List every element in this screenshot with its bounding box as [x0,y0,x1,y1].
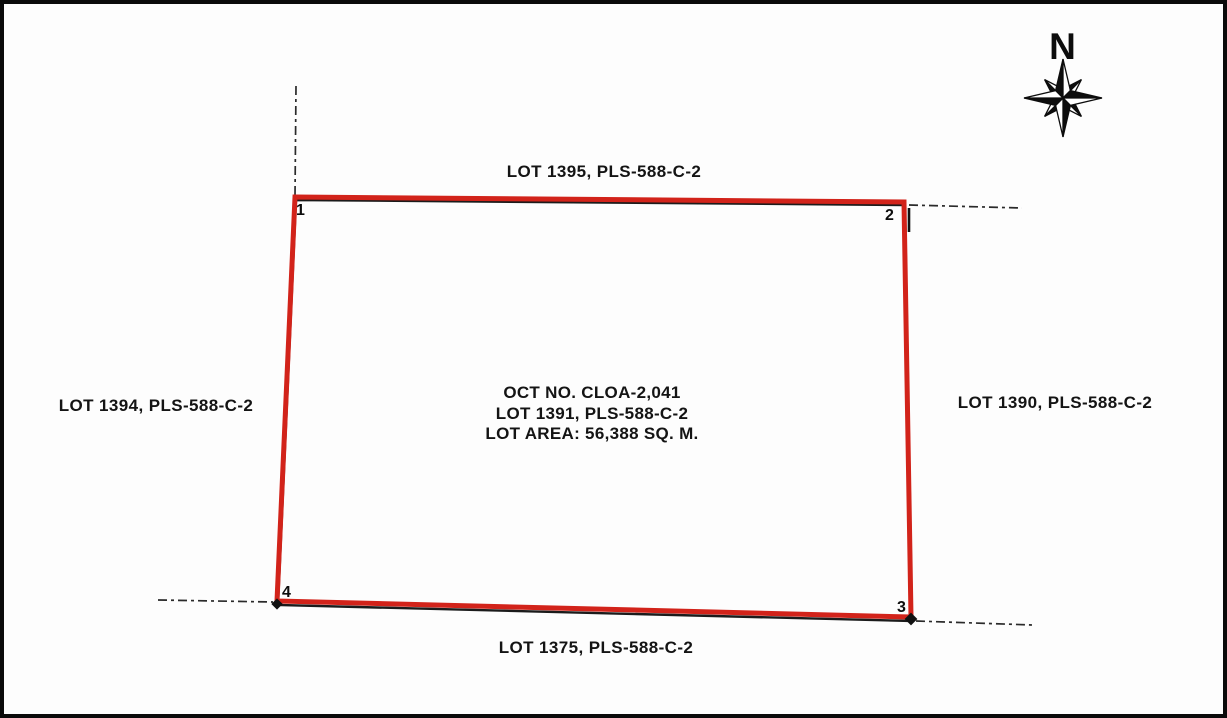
survey-plan-sheet: N LOT 1395, PLS-588-C-2 LOT 1394, PLS-58… [0,0,1227,718]
tie-line-corner1-up [295,86,296,197]
corner-label-4: 4 [282,584,291,602]
parcel-oct-number: OCT NO. CLOA-2,041 [485,383,698,404]
tie-line-corner4-left [158,600,273,602]
compass-rose-icon [1024,59,1102,137]
adjacent-lot-label-north: LOT 1395, PLS-588-C-2 [507,162,702,182]
corner-label-3: 3 [897,599,906,617]
tie-line-corner2-right [909,205,1022,208]
compass-north-label: N [1049,26,1077,68]
adjacent-lot-label-south: LOT 1375, PLS-588-C-2 [499,638,694,658]
tie-line-corner3-right [916,621,1033,625]
plan-drawing [4,4,1223,714]
parcel-title-block: OCT NO. CLOA-2,041 LOT 1391, PLS-588-C-2… [485,383,698,445]
parcel-lot-number: LOT 1391, PLS-588-C-2 [485,404,698,425]
adjacent-lot-label-west: LOT 1394, PLS-588-C-2 [59,396,254,416]
corner-label-2: 2 [885,207,894,225]
parcel-lot-area: LOT AREA: 56,388 SQ. M. [485,424,698,445]
adjacent-lot-label-east: LOT 1390, PLS-588-C-2 [958,393,1153,413]
corner-label-1: 1 [296,202,305,220]
